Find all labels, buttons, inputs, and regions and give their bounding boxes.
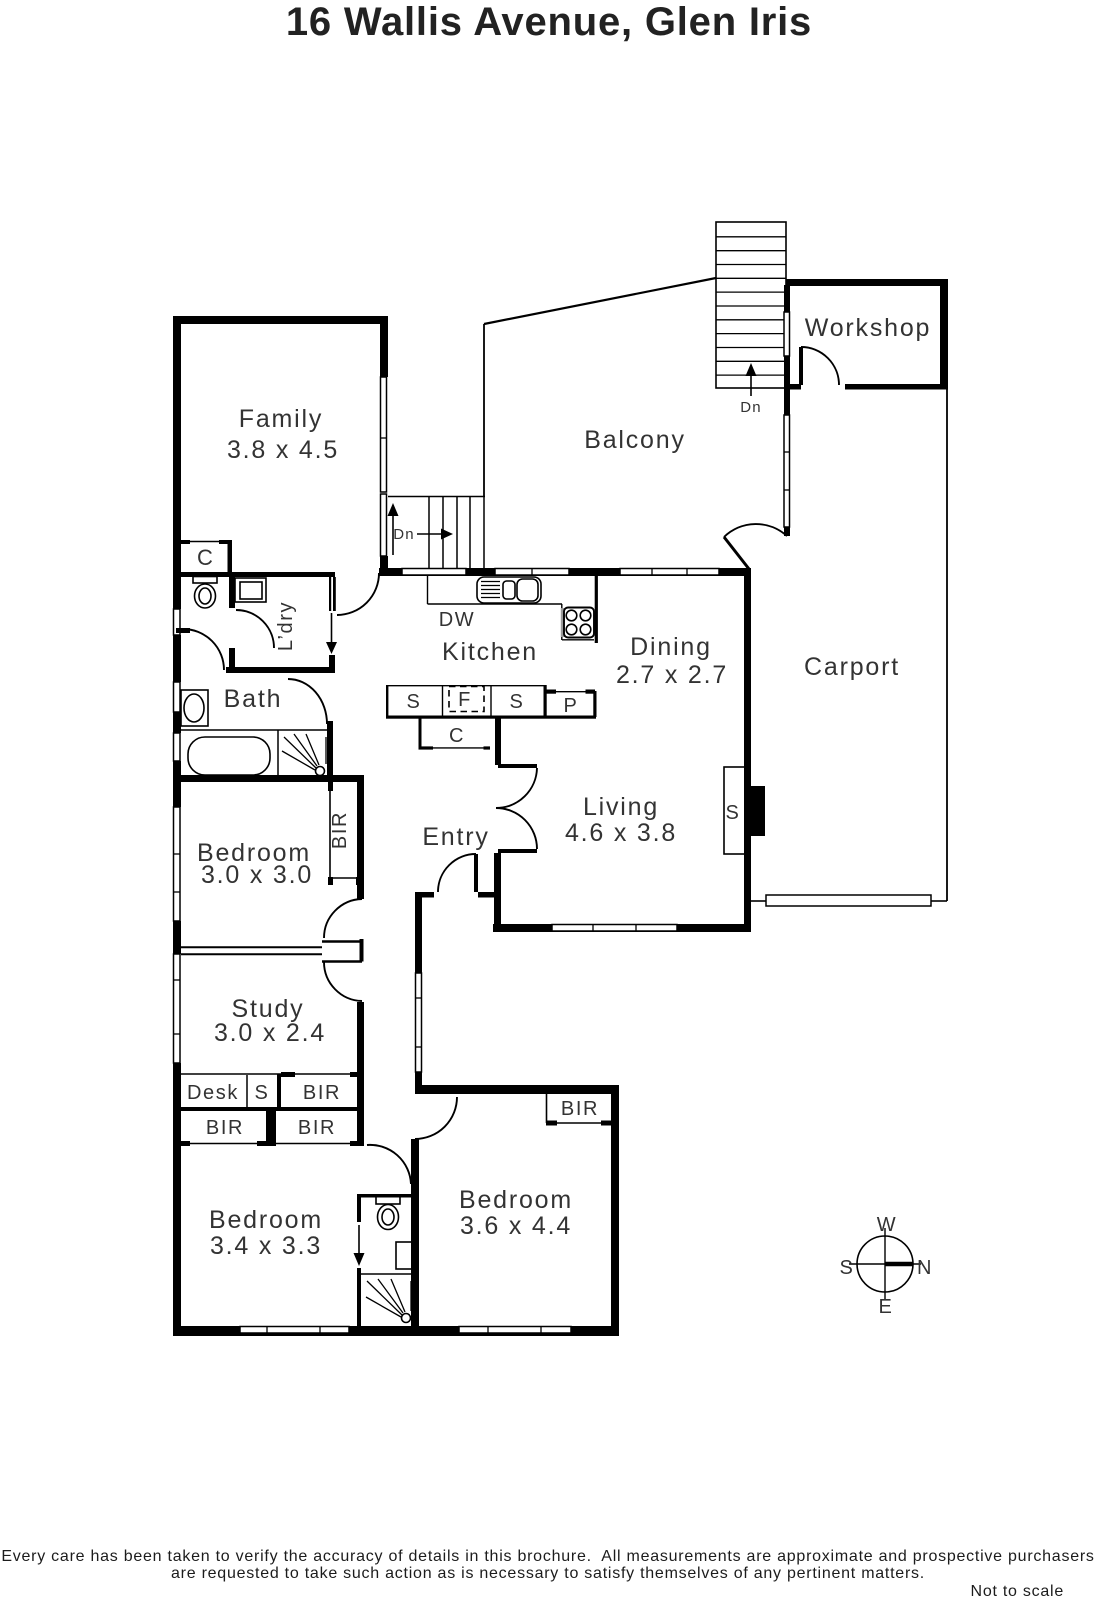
- svg-text:3.8 x 4.5: 3.8 x 4.5: [227, 436, 339, 464]
- svg-text:BIR: BIR: [298, 1117, 336, 1139]
- svg-text:C: C: [197, 545, 213, 570]
- svg-text:Workshop: Workshop: [805, 314, 932, 342]
- svg-text:S: S: [726, 802, 741, 824]
- svg-text:4.6 x 3.8: 4.6 x 3.8: [565, 819, 677, 847]
- svg-text:BIR: BIR: [303, 1082, 341, 1104]
- svg-text:16 Wallis Avenue, Glen Iris: 16 Wallis Avenue, Glen Iris: [286, 0, 812, 44]
- svg-text:C: C: [449, 725, 465, 747]
- svg-text:F: F: [458, 689, 472, 711]
- svg-text:BIR: BIR: [329, 811, 351, 849]
- svg-text:N: N: [917, 1257, 933, 1279]
- svg-text:Every care has been taken to v: Every care has been taken to verify the …: [1, 1548, 1094, 1565]
- svg-text:Dining: Dining: [630, 633, 712, 661]
- svg-text:3.0 x 3.0: 3.0 x 3.0: [201, 861, 313, 889]
- svg-text:Kitchen: Kitchen: [442, 638, 538, 666]
- svg-text:Not to scale: Not to scale: [971, 1583, 1064, 1600]
- svg-text:Living: Living: [583, 793, 659, 821]
- svg-text:Family: Family: [239, 405, 323, 433]
- svg-text:S: S: [510, 691, 525, 713]
- svg-text:Balcony: Balcony: [584, 426, 686, 454]
- svg-text:Bath: Bath: [224, 685, 283, 713]
- svg-text:DW: DW: [439, 609, 476, 631]
- svg-text:3.4 x 3.3: 3.4 x 3.3: [210, 1232, 322, 1260]
- svg-text:2.7 x 2.7: 2.7 x 2.7: [616, 661, 728, 689]
- svg-text:Entry: Entry: [422, 823, 489, 851]
- svg-text:Dn: Dn: [393, 526, 415, 543]
- svg-text:L’dry: L’dry: [275, 601, 297, 651]
- svg-text:3.0 x 2.4: 3.0 x 2.4: [214, 1019, 326, 1047]
- svg-text:Bedroom: Bedroom: [209, 1206, 323, 1234]
- svg-text:BIR: BIR: [561, 1098, 599, 1120]
- svg-text:BIR: BIR: [206, 1117, 244, 1139]
- svg-text:3.6 x 4.4: 3.6 x 4.4: [460, 1212, 572, 1240]
- svg-text:Dn: Dn: [740, 399, 762, 416]
- svg-text:E: E: [879, 1296, 894, 1318]
- svg-text:W: W: [877, 1214, 897, 1236]
- svg-text:Bedroom: Bedroom: [459, 1186, 573, 1214]
- svg-text:S: S: [840, 1257, 855, 1279]
- svg-text:are requested to take such act: are requested to take such action as is …: [171, 1565, 925, 1582]
- svg-text:Desk: Desk: [187, 1082, 239, 1104]
- svg-text:P: P: [564, 695, 579, 717]
- svg-text:S: S: [407, 691, 422, 713]
- svg-text:Carport: Carport: [804, 653, 900, 681]
- svg-text:S: S: [255, 1082, 270, 1104]
